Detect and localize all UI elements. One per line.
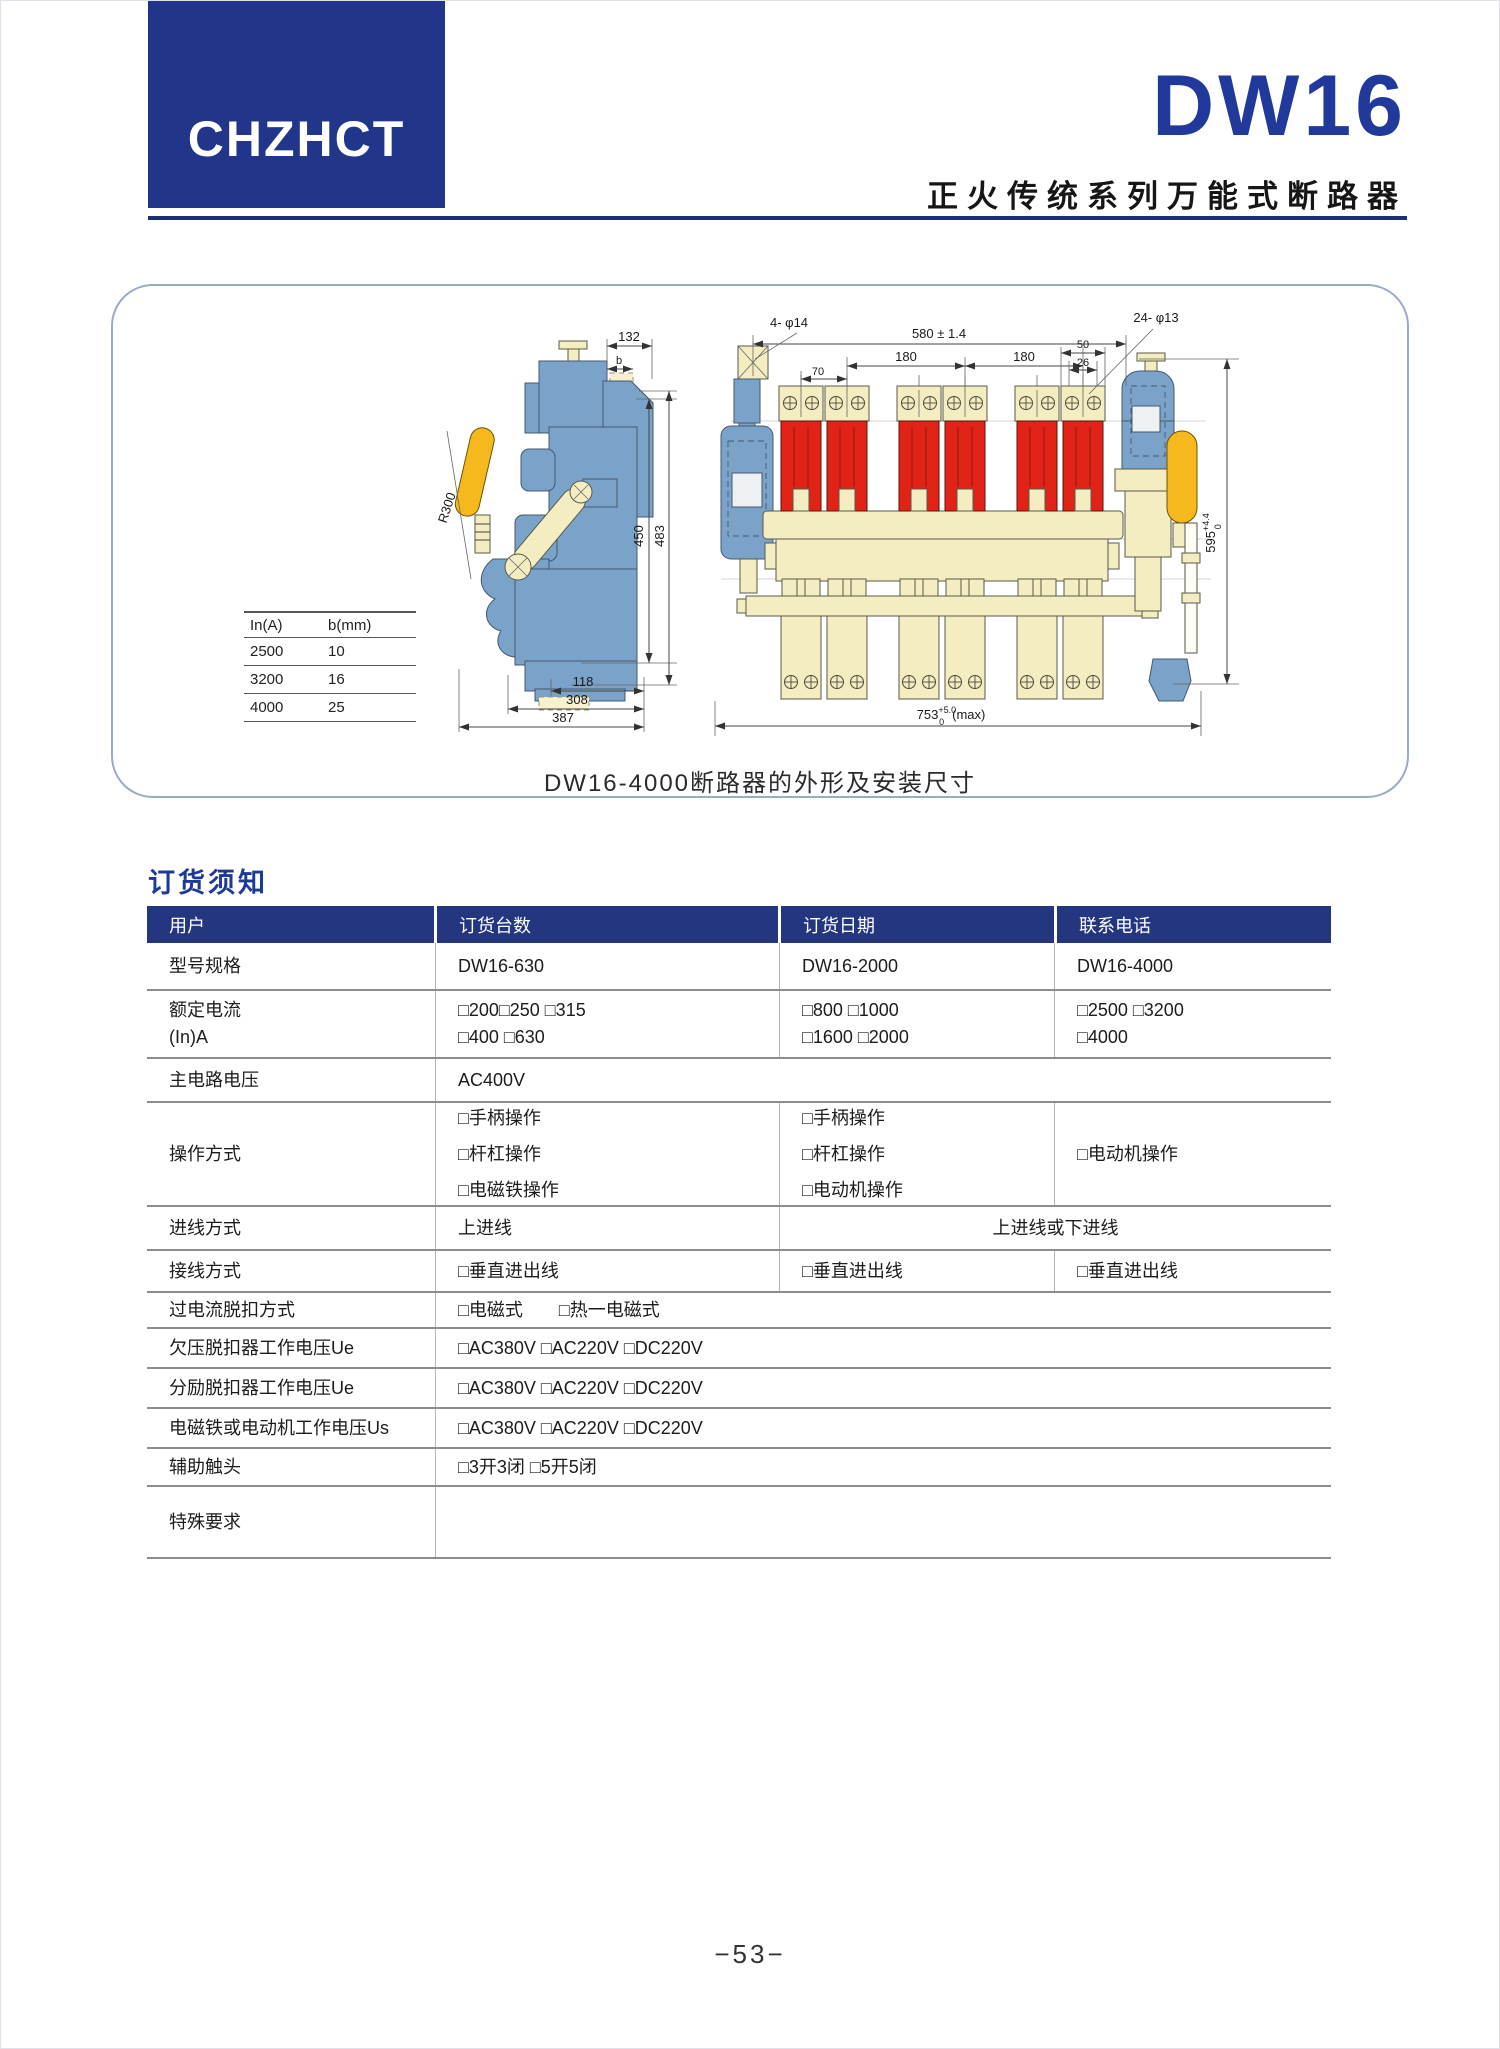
size-table: In(A) b(mm) 2500 10 3200 16 4000 25 [244,611,416,722]
checkbox-options: □电动机操作 [802,1172,1054,1208]
dim-387: 387 [552,710,574,725]
col-header-quantity: 订货台数 [437,906,778,943]
breaker-side-body [453,341,653,710]
size-table-row: 2500 10 [244,638,416,666]
dim-4phi14: 4- φ14 [770,315,808,330]
page-subtitle: 正火传统系列万能式断路器 [927,171,1407,216]
front-view-drawing: 580 ± 1.4 4- φ14 24- φ13 180 180 70 50 2… [701,291,1241,751]
checkbox-options: □电磁铁操作 [458,1172,779,1208]
order-section-title: 订货须知 [148,861,268,900]
dim-118: 118 [573,674,594,689]
checkbox-options: □AC380V □AC220V □DC220V [436,1329,1331,1367]
mounting-plate [734,346,768,437]
row-shunt-release: 分励脱扣器工作电压Ue □AC380V □AC220V □DC220V [147,1369,1331,1409]
row-rated-current: 额定电流 (In)A □200□250 □315 □400 □630 □800 … [147,991,1331,1059]
checkbox-options: □800 □1000 [802,997,1054,1024]
checkbox-options: □AC380V □AC220V □DC220V [436,1409,1331,1447]
order-table: 用户 订货台数 订货日期 联系电话 型号规格 DW16-630 DW16-200… [147,906,1331,1559]
row-main-voltage: 主电路电压 AC400V [147,1059,1331,1103]
size-table-row: 3200 16 [244,666,416,694]
dim-b: b [616,355,622,367]
brand-logo-text: CHZHCT [188,110,406,168]
col-header-date: 订货日期 [781,906,1054,943]
checkbox-options: □400 □630 [458,1024,779,1051]
side-view-drawing: 132 b R300 450 483 118 308 387 [431,331,701,741]
checkbox-options: □手柄操作 [458,1100,779,1136]
col-header-user: 用户 [147,906,434,943]
checkbox-options: □电动机操作 [1055,1103,1331,1205]
checkbox-options: □2500 □3200 [1077,997,1331,1024]
dim-308: 308 [566,692,588,707]
dim-r300: R300 [435,491,459,525]
figure-caption: DW16-4000断路器的外形及安装尺寸 [111,763,1409,798]
checkbox-options: □杆杠操作 [458,1136,779,1172]
dim-26: 26 [1077,357,1089,369]
checkbox-options: □200□250 □315 [458,997,779,1024]
dim-24phi13: 24- φ13 [1133,310,1178,325]
checkbox-options: □杆杠操作 [802,1136,1054,1172]
order-table-header: 用户 订货台数 订货日期 联系电话 [147,906,1331,943]
dim-580: 580 ± 1.4 [912,326,966,341]
checkbox-options: □垂直进出线 [1055,1251,1331,1291]
checkbox-options: □1600 □2000 [802,1024,1054,1051]
dim-70: 70 [812,366,824,378]
row-wiring-mode: 接线方式 □垂直进出线 □垂直进出线 □垂直进出线 [147,1251,1331,1293]
row-undervoltage-release: 欠压脱扣器工作电压Ue □AC380V □AC220V □DC220V [147,1329,1331,1369]
checkbox-options: □垂直进出线 [436,1251,780,1291]
breaker-front-body [763,511,1123,581]
checkbox-options: □手柄操作 [802,1100,1054,1136]
row-solenoid-voltage: 电磁铁或电动机工作电压Us □AC380V □AC220V □DC220V [147,1409,1331,1449]
col-header-phone: 联系电话 [1057,906,1331,943]
page-number: −53− [1,1939,1499,1970]
dim-753: 753+5.00(max) [917,705,986,727]
checkbox-options: □电磁式 □热一电磁式 [436,1293,1331,1327]
dim-483: 483 [652,525,667,547]
dim-595: 595+4.40 [1201,513,1223,552]
operating-handle [453,425,497,518]
size-table-row: 4000 25 [244,694,416,722]
checkbox-options: □3开3闭 □5开5闭 [436,1449,1331,1485]
checkbox-options: □垂直进出线 [780,1251,1055,1291]
header-divider [148,216,1407,220]
row-operation-mode: 操作方式 □手柄操作 □杆杠操作 □电磁铁操作 □手柄操作 □杆杠操作 □电动机… [147,1103,1331,1207]
dim-450: 450 [631,525,646,547]
dim-180a: 180 [895,349,917,364]
size-table-col2-header: b(mm) [324,617,416,634]
page-title: DW16 [1152,63,1407,149]
checkbox-options: □4000 [1077,1024,1331,1051]
row-inlet-mode: 进线方式 上进线 上进线或下进线 [147,1207,1331,1251]
row-model: 型号规格 DW16-630 DW16-2000 DW16-4000 [147,943,1331,991]
row-overcurrent-release: 过电流脱扣方式 □电磁式 □热一电磁式 [147,1293,1331,1329]
row-auxiliary-contacts: 辅助触头 □3开3闭 □5开5闭 [147,1449,1331,1487]
dim-132: 132 [618,331,640,344]
size-table-col1-header: In(A) [244,617,324,634]
dim-180b: 180 [1013,349,1035,364]
checkbox-options: □AC380V □AC220V □DC220V [436,1369,1331,1407]
dim-50: 50 [1077,339,1089,351]
brand-logo: CHZHCT [148,1,445,208]
row-special-requirements: 特殊要求 [147,1487,1331,1559]
catalog-page: CHZHCT DW16 正火传统系列万能式断路器 [0,0,1500,2049]
bus-bar [737,594,1158,618]
